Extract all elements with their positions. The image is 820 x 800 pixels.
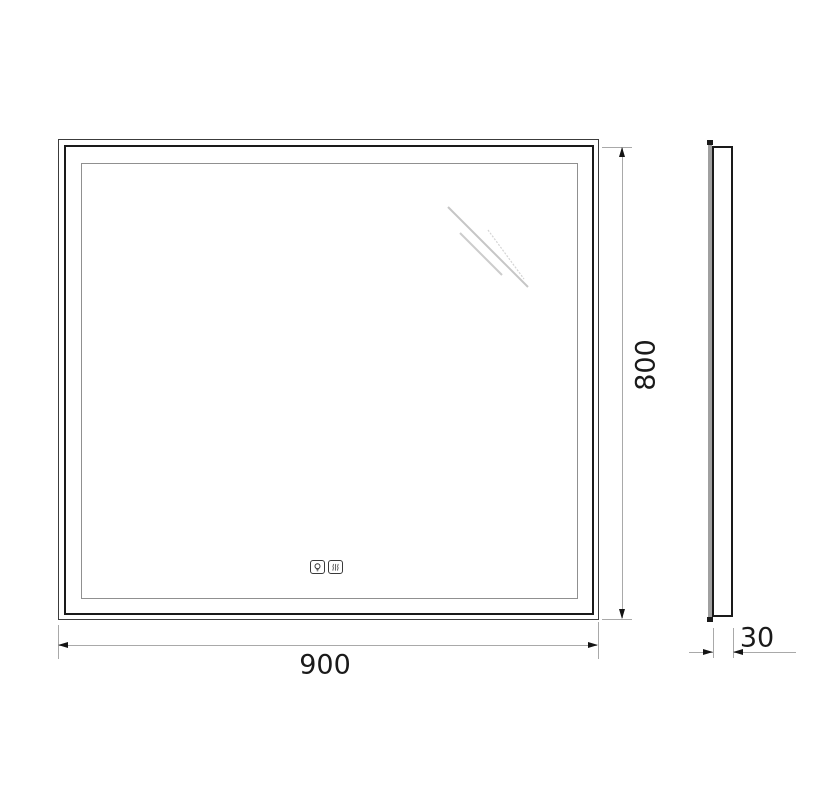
- glass-reflection-lines: [440, 197, 540, 297]
- height-arrow-down: [619, 609, 625, 619]
- height-extension-line-bottom: [602, 619, 632, 620]
- mirror-technical-drawing: 800 900 30: [0, 0, 820, 800]
- side-view-body: [712, 146, 733, 617]
- depth-arrow-right-pointing: [703, 649, 713, 655]
- width-dimension-label: 900: [299, 652, 351, 679]
- height-dimension-label: 800: [633, 339, 660, 391]
- height-extension-line-top: [602, 147, 632, 148]
- width-extension-line-right: [598, 622, 599, 659]
- height-dimension-line: [622, 148, 623, 618]
- anti-fog-touch-button: [328, 560, 343, 574]
- height-arrow-up: [619, 147, 625, 157]
- heater-waves-icon: [330, 562, 341, 573]
- width-arrow-right: [588, 642, 598, 648]
- side-view-top-cap: [707, 140, 713, 145]
- width-arrow-left: [58, 642, 68, 648]
- depth-dimension-label: 30: [740, 625, 774, 652]
- width-dimension-line: [59, 645, 597, 646]
- side-view-bottom-cap: [707, 617, 713, 622]
- light-touch-button: [310, 560, 325, 574]
- depth-extension-line-left: [713, 628, 714, 658]
- light-bulb-icon: [312, 562, 323, 573]
